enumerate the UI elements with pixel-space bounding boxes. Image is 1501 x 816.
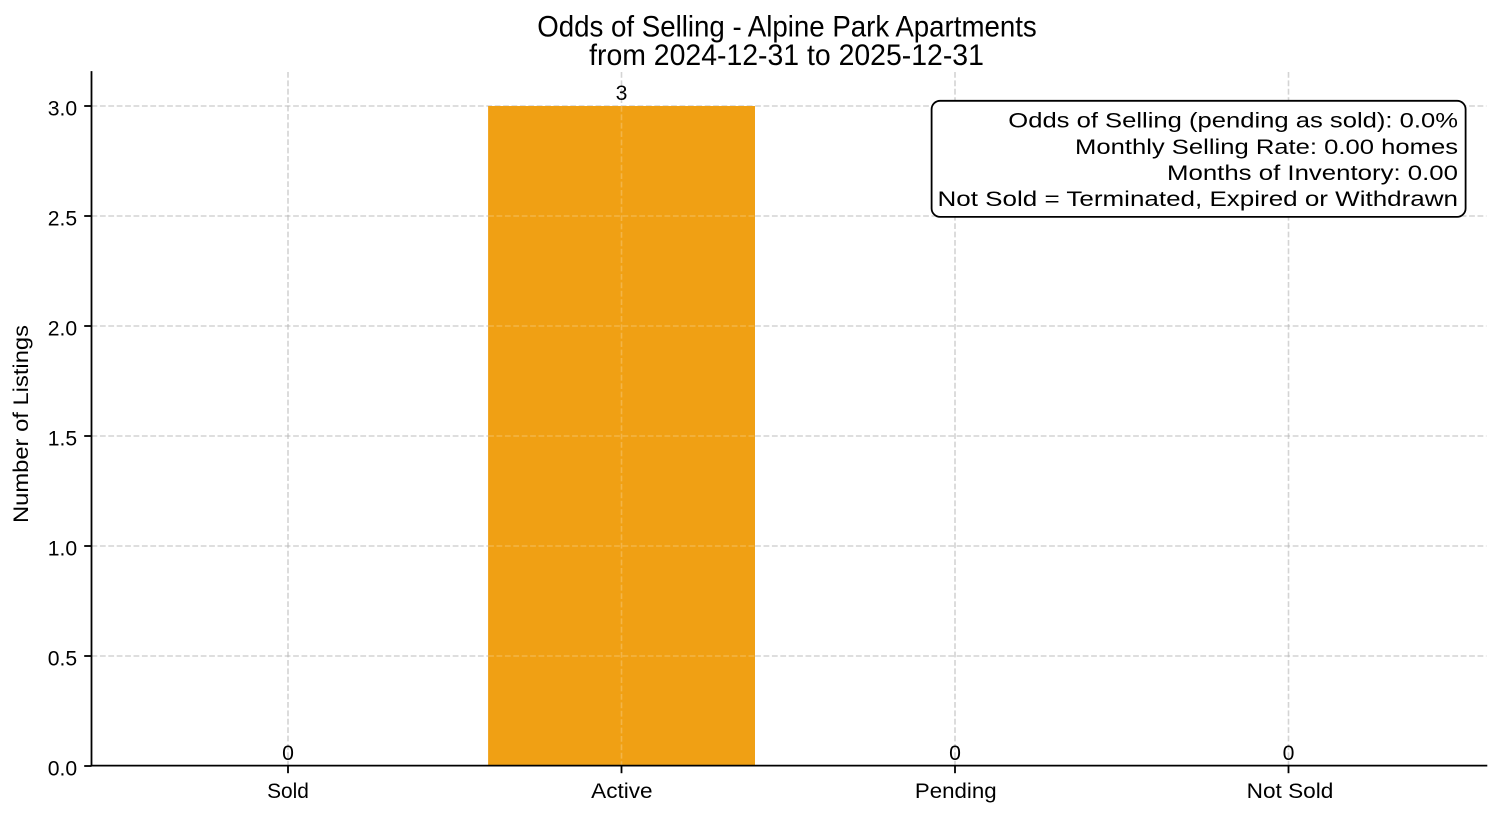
svg-text:3.0: 3.0 <box>48 97 77 120</box>
svg-text:2.5: 2.5 <box>48 207 77 230</box>
svg-text:0: 0 <box>282 742 294 765</box>
svg-text:0.0: 0.0 <box>48 757 77 780</box>
svg-text:0: 0 <box>1283 742 1295 765</box>
svg-text:2.0: 2.0 <box>48 317 77 340</box>
svg-text:Odds of Selling - Alpine Park: Odds of Selling - Alpine Park Apartments <box>537 11 1037 43</box>
svg-text:Months of Inventory: 0.00: Months of Inventory: 0.00 <box>1167 162 1458 185</box>
svg-text:Odds of Selling (pending as so: Odds of Selling (pending as sold): 0.0% <box>1008 110 1458 133</box>
svg-text:0.5: 0.5 <box>48 647 77 670</box>
svg-text:Number of Listings: Number of Listings <box>10 325 33 523</box>
svg-text:1.5: 1.5 <box>48 427 77 450</box>
svg-text:Active: Active <box>591 780 652 803</box>
svg-text:3: 3 <box>616 82 628 105</box>
svg-text:from 2024-12-31 to 2025-12-31: from 2024-12-31 to 2025-12-31 <box>589 40 984 72</box>
svg-text:Not Sold = Terminated, Expired: Not Sold = Terminated, Expired or Withdr… <box>938 188 1459 211</box>
svg-text:Monthly Selling Rate: 0.00 hom: Monthly Selling Rate: 0.00 homes <box>1075 136 1458 159</box>
svg-text:1.0: 1.0 <box>48 537 77 560</box>
svg-text:Pending: Pending <box>915 780 997 803</box>
svg-text:0: 0 <box>949 742 961 765</box>
svg-text:Not Sold: Not Sold <box>1247 780 1334 803</box>
svg-text:Sold: Sold <box>267 780 309 803</box>
